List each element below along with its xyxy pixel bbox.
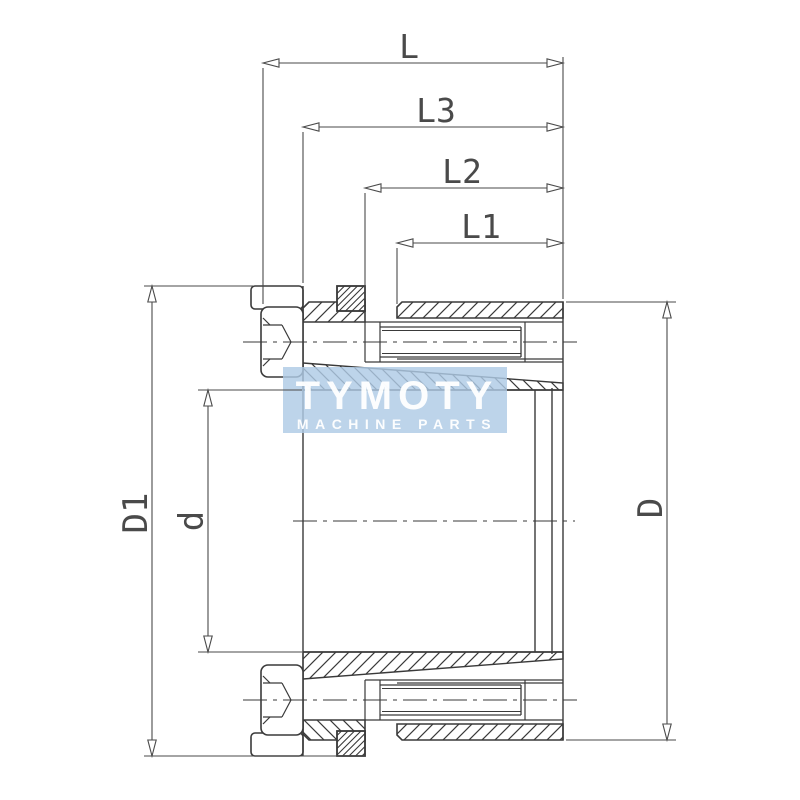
dim-label-d1: D1 [116, 493, 156, 534]
outer-ring-top [397, 302, 563, 318]
flange-slot-block-bottom [337, 731, 365, 756]
watermark: TYMOTY MACHINE PARTS [283, 367, 507, 433]
technical-drawing-canvas: TYMOTY MACHINE PARTS [0, 0, 800, 800]
dim-label-l: L [399, 27, 419, 66]
watermark-brand: TYMOTY [296, 374, 499, 418]
locking-assembly-section-drawing: TYMOTY MACHINE PARTS [0, 0, 800, 800]
flange-rim-top [251, 286, 303, 309]
outer-ring-bottom [397, 724, 563, 740]
dim-label-l2: L2 [442, 152, 482, 191]
flange-slot-block-top [337, 286, 365, 311]
watermark-tagline: MACHINE PARTS [297, 416, 497, 432]
dim-label-l3: L3 [416, 91, 456, 130]
dim-label-d-bore: d [172, 511, 212, 531]
dim-label-d-outer: D [631, 498, 671, 518]
dim-label-l1: L1 [461, 207, 501, 246]
flange-rim-bottom [251, 733, 303, 756]
